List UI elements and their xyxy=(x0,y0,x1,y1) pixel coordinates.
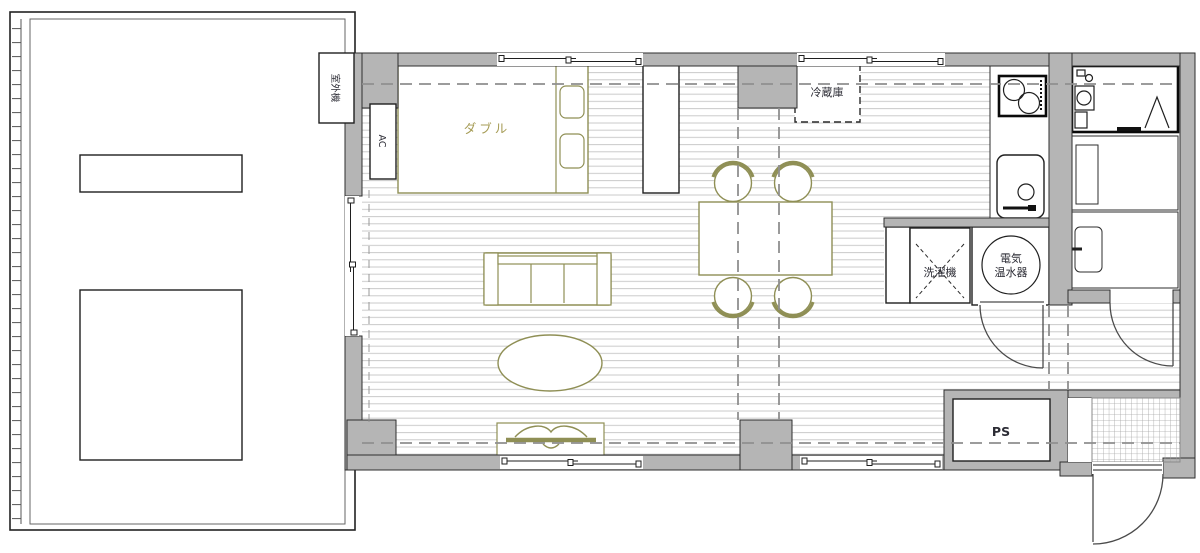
bath-sill xyxy=(1117,127,1141,131)
bed-label: ダブル xyxy=(464,121,511,136)
washer-label: 洗濯機 xyxy=(924,265,957,279)
pier-top xyxy=(738,66,797,108)
utility-shelf xyxy=(886,227,910,303)
pillow xyxy=(560,134,584,168)
column xyxy=(643,62,679,193)
wall-entrance-left-jamb xyxy=(1060,462,1092,476)
utility-closet xyxy=(886,219,1049,305)
balcony-railing xyxy=(12,19,21,524)
bathroom xyxy=(1072,66,1178,132)
stove xyxy=(999,76,1046,116)
outdoor-unit-label: 室外機 xyxy=(329,74,341,103)
vanity-backing xyxy=(1068,132,1180,303)
chair xyxy=(713,278,753,317)
wall-entrance-top xyxy=(1068,390,1180,398)
pipe-space-label: PS xyxy=(992,424,1010,439)
window-top-1 xyxy=(497,53,643,66)
wall-kitchen-bath-divider xyxy=(1049,53,1072,305)
entrance-door xyxy=(1093,474,1163,544)
window-bottom-1 xyxy=(500,456,643,469)
chair xyxy=(713,162,753,201)
balcony-bench xyxy=(80,155,242,192)
balcony-sliding-door xyxy=(345,196,359,336)
tv-board xyxy=(497,423,604,457)
floor-plan-canvas: 室外機 AC 冷蔵庫 洗濯機 電気 温水器 PS ダブル xyxy=(0,0,1200,553)
window-bottom-2 xyxy=(800,456,942,469)
pillow xyxy=(560,86,584,118)
water-heater-label-line1: 電気 xyxy=(1000,251,1022,265)
balcony-table xyxy=(80,290,242,460)
kitchen-sink xyxy=(997,155,1044,218)
entrance-tile xyxy=(1092,398,1180,462)
wall-vanity-door-left xyxy=(1068,290,1110,303)
wall-closet-top xyxy=(884,218,1049,227)
balcony xyxy=(10,12,355,530)
ac-label: AC xyxy=(376,135,387,148)
water-heater-label-line2: 温水器 xyxy=(995,266,1028,279)
window-top-2 xyxy=(797,53,945,66)
closet-door-sill xyxy=(978,298,1046,307)
floor-plan: 室外機 AC 冷蔵庫 洗濯機 電気 温水器 PS ダブル xyxy=(0,0,1200,553)
entrance-step xyxy=(1068,398,1092,462)
unit-bath xyxy=(1072,66,1178,132)
pier-bottom xyxy=(740,420,792,470)
dining-table xyxy=(699,202,832,275)
wall-vanity-door-right xyxy=(1173,290,1180,303)
wall-right xyxy=(1180,53,1195,478)
entrance-door-sill xyxy=(1092,462,1163,474)
sofa xyxy=(484,253,611,305)
fridge-label: 冷蔵庫 xyxy=(811,85,844,99)
oval-rug xyxy=(498,335,602,391)
